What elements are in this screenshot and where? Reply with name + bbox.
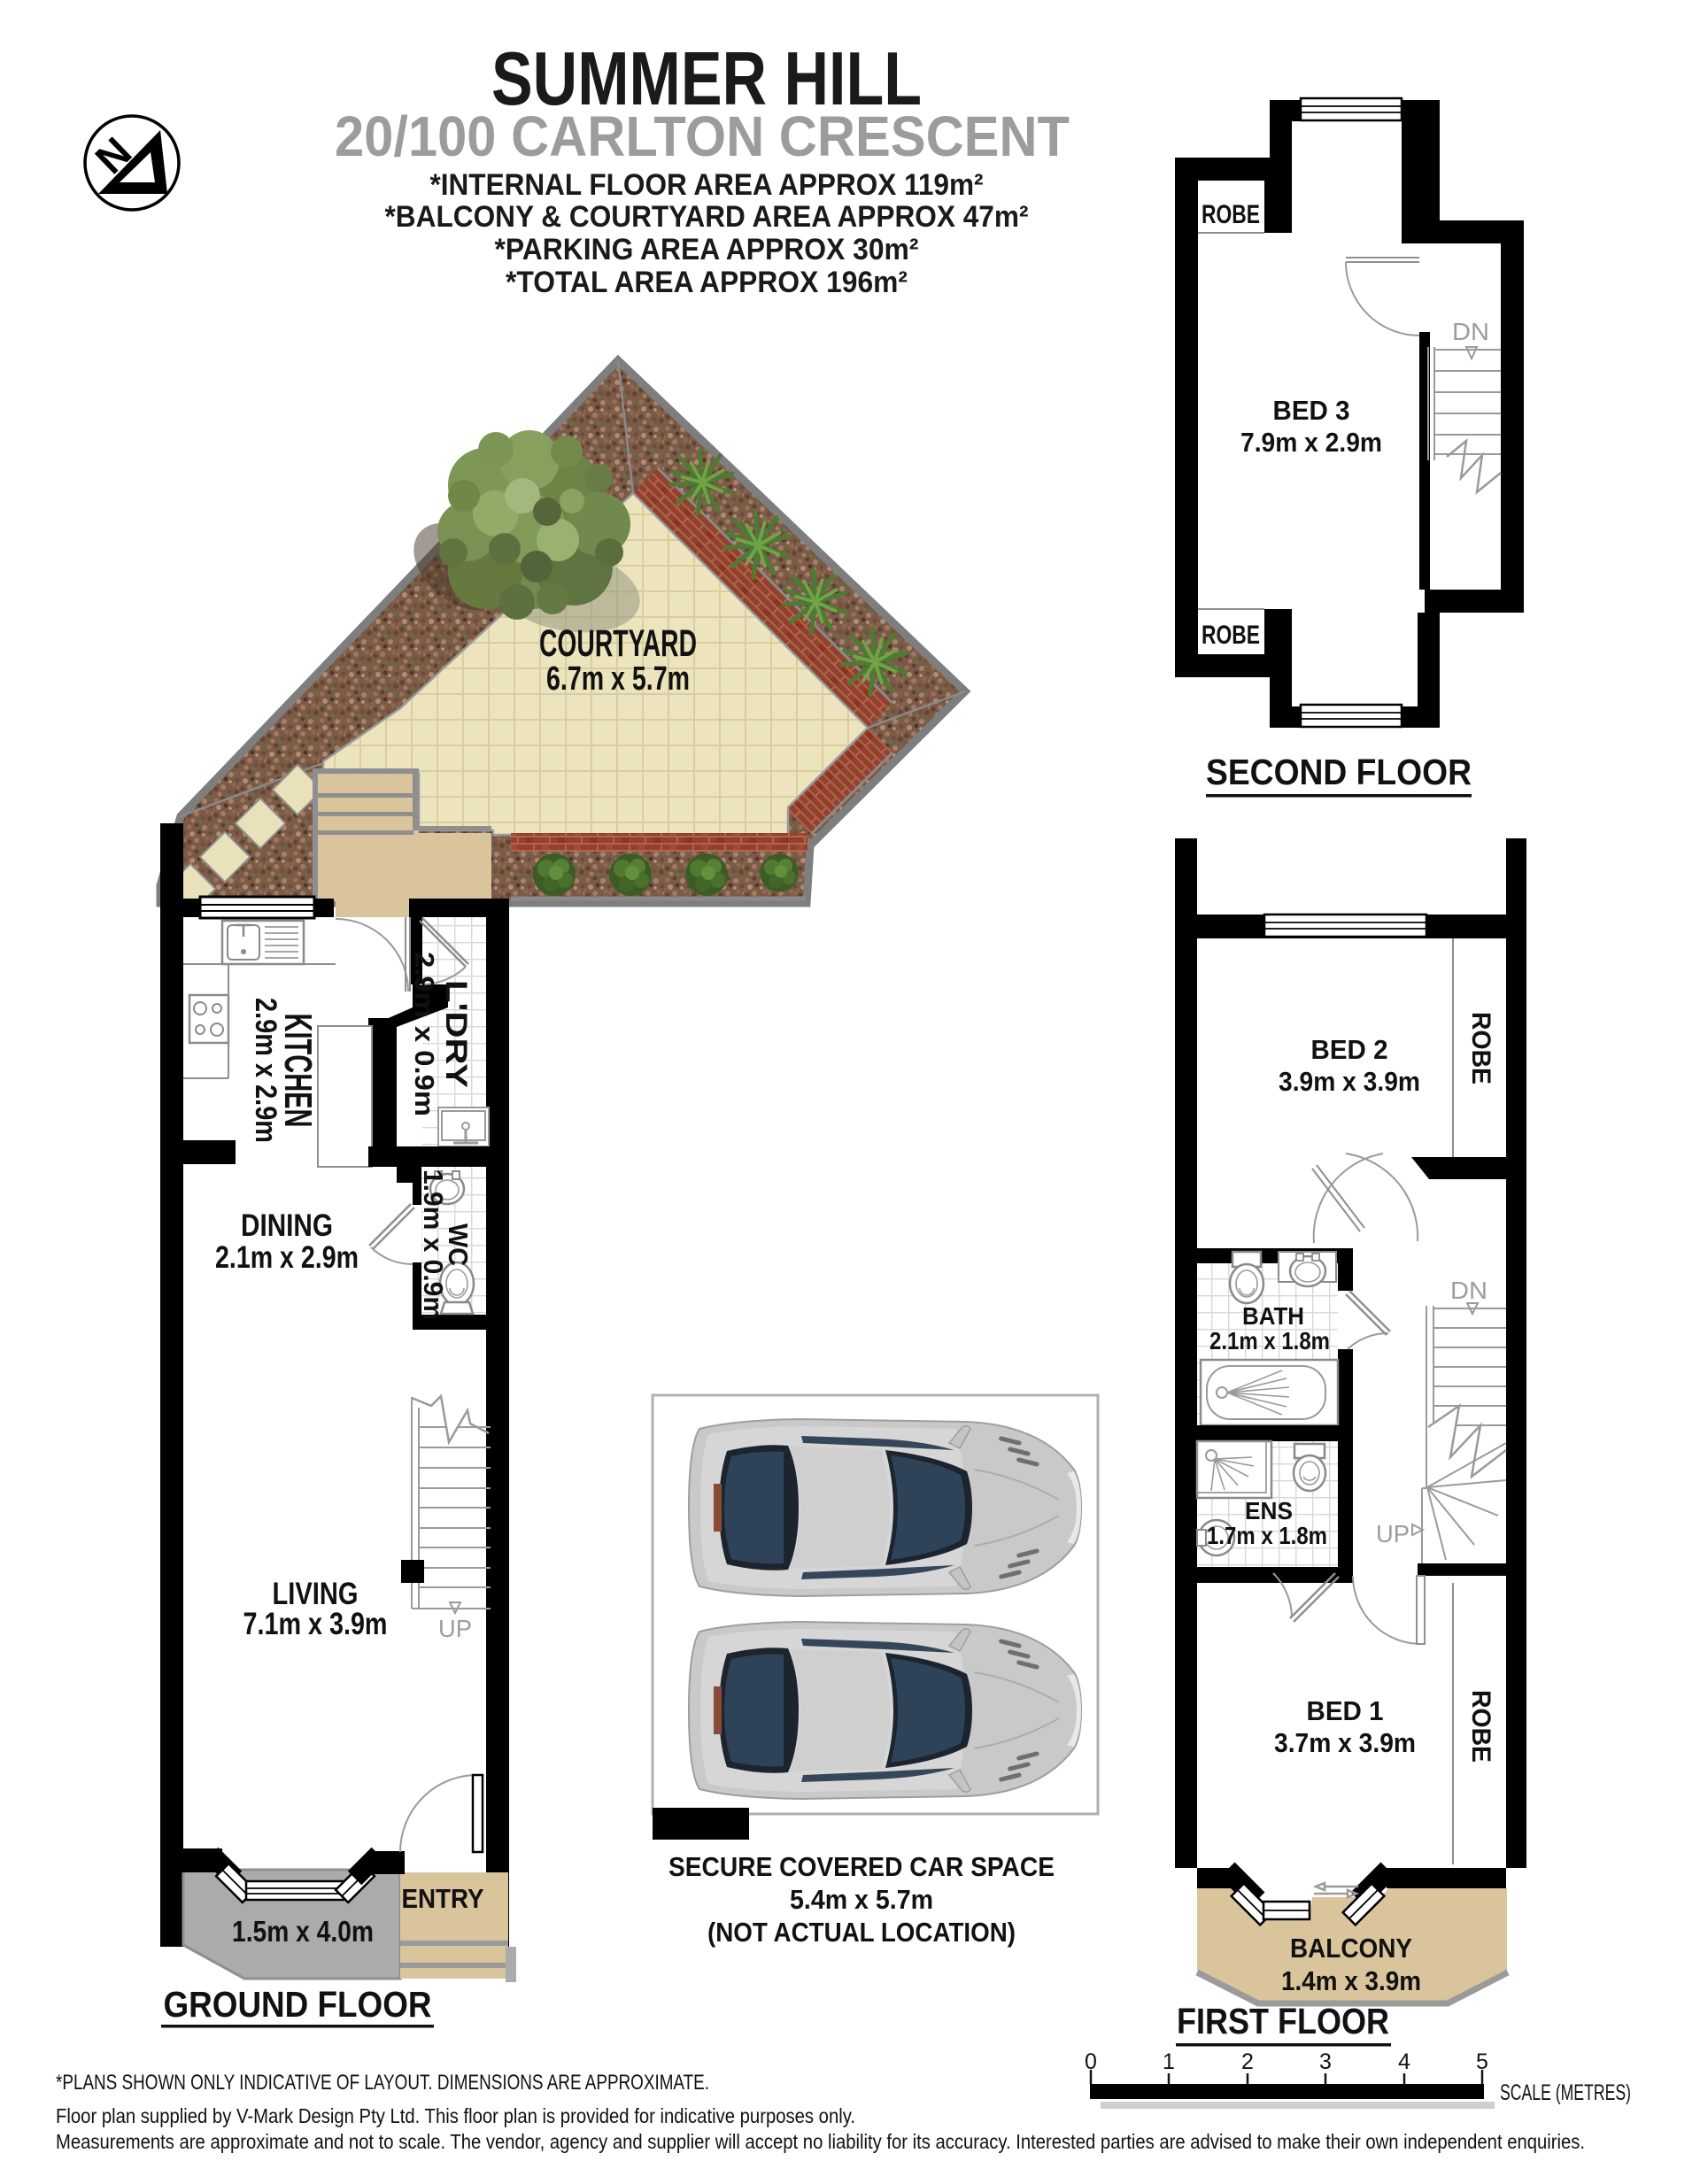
svg-text:FIRST FLOOR: FIRST FLOOR	[1177, 2001, 1389, 2041]
svg-text:1.4m x 3.9m: 1.4m x 3.9m	[1281, 1965, 1421, 1996]
svg-text:3.7m x 3.9m: 3.7m x 3.9m	[1274, 1727, 1416, 1758]
svg-text:1: 1	[1163, 2049, 1175, 2074]
svg-text:BED 2: BED 2	[1311, 1034, 1388, 1065]
svg-text:ROBE: ROBE	[1202, 200, 1260, 229]
svg-text:ENS: ENS	[1245, 1497, 1293, 1524]
svg-text:ENTRY: ENTRY	[402, 1883, 484, 1914]
svg-text:Floor plan supplied by V-Mark: Floor plan supplied by V-Mark Design Pty…	[56, 2104, 855, 2127]
svg-text:SECURE COVERED CAR SPACE: SECURE COVERED CAR SPACE	[668, 1851, 1055, 1882]
svg-text:*BALCONY & COURTYARD AREA APPR: *BALCONY & COURTYARD AREA APPROX 47m²	[385, 200, 1029, 234]
svg-text:Measurements are approximate a: Measurements are approximate and not to …	[56, 2130, 1585, 2153]
svg-text:L'DRY: L'DRY	[439, 980, 473, 1088]
svg-text:SCALE (METRES): SCALE (METRES)	[1500, 2080, 1631, 2105]
svg-text:5.4m x 5.7m: 5.4m x 5.7m	[790, 1884, 933, 1915]
svg-text:3.9m x 3.9m: 3.9m x 3.9m	[1279, 1066, 1420, 1097]
svg-text:1.5m x 4.0m: 1.5m x 4.0m	[232, 1915, 374, 1948]
svg-text:UP: UP	[438, 1615, 472, 1642]
svg-text:GROUND FLOOR: GROUND FLOOR	[164, 1984, 432, 2025]
svg-text:7.1m x 3.9m: 7.1m x 3.9m	[243, 1607, 388, 1641]
svg-text:1.7m x 1.8m: 1.7m x 1.8m	[1207, 1522, 1327, 1549]
svg-text:(NOT ACTUAL LOCATION): (NOT ACTUAL LOCATION)	[707, 1917, 1016, 1948]
svg-text:*PLANS SHOWN ONLY INDICATIVE O: *PLANS SHOWN ONLY INDICATIVE OF LAYOUT. …	[56, 2071, 709, 2095]
svg-text:*PARKING AREA APPROX 30m²: *PARKING AREA APPROX 30m²	[495, 233, 919, 266]
svg-text:2.1m x 1.8m: 2.1m x 1.8m	[1209, 1327, 1330, 1354]
svg-text:BALCONY: BALCONY	[1290, 1933, 1412, 1964]
svg-text:2.1m x 2.9m: 2.1m x 2.9m	[215, 1240, 359, 1275]
svg-text:BATH: BATH	[1242, 1302, 1304, 1330]
svg-text:BED 1: BED 1	[1307, 1695, 1384, 1726]
svg-text:2.9m x 0.9m: 2.9m x 0.9m	[409, 952, 440, 1116]
svg-text:ROBE: ROBE	[1466, 1690, 1495, 1763]
svg-text:UP: UP	[1376, 1520, 1410, 1547]
svg-text:2.9m x 2.9m: 2.9m x 2.9m	[249, 998, 282, 1143]
svg-text:DN: DN	[1452, 318, 1489, 345]
svg-text:DINING: DINING	[241, 1208, 333, 1243]
svg-text:BED 3: BED 3	[1273, 395, 1350, 426]
svg-text:SECOND FLOOR: SECOND FLOOR	[1206, 752, 1472, 792]
svg-text:3: 3	[1319, 2049, 1332, 2074]
svg-text:ROBE: ROBE	[1466, 1012, 1495, 1084]
svg-text:2: 2	[1241, 2049, 1254, 2074]
svg-text:COURTYARD: COURTYARD	[539, 622, 697, 665]
svg-text:4: 4	[1398, 2049, 1410, 2074]
svg-text:6.7m x 5.7m: 6.7m x 5.7m	[546, 660, 690, 698]
svg-text:1.9m x 0.9m: 1.9m x 0.9m	[418, 1169, 449, 1320]
svg-text:DN: DN	[1450, 1277, 1487, 1304]
svg-text:*INTERNAL FLOOR AREA APPROX 11: *INTERNAL FLOOR AREA APPROX 119m²	[430, 168, 984, 202]
svg-text:20/100 CARLTON CRESCENT: 20/100 CARLTON CRESCENT	[335, 104, 1070, 168]
svg-text:ROBE: ROBE	[1202, 621, 1260, 650]
svg-text:7.9m x 2.9m: 7.9m x 2.9m	[1240, 427, 1382, 458]
svg-text:*TOTAL AREA APPROX 196m²: *TOTAL AREA APPROX 196m²	[506, 266, 908, 299]
